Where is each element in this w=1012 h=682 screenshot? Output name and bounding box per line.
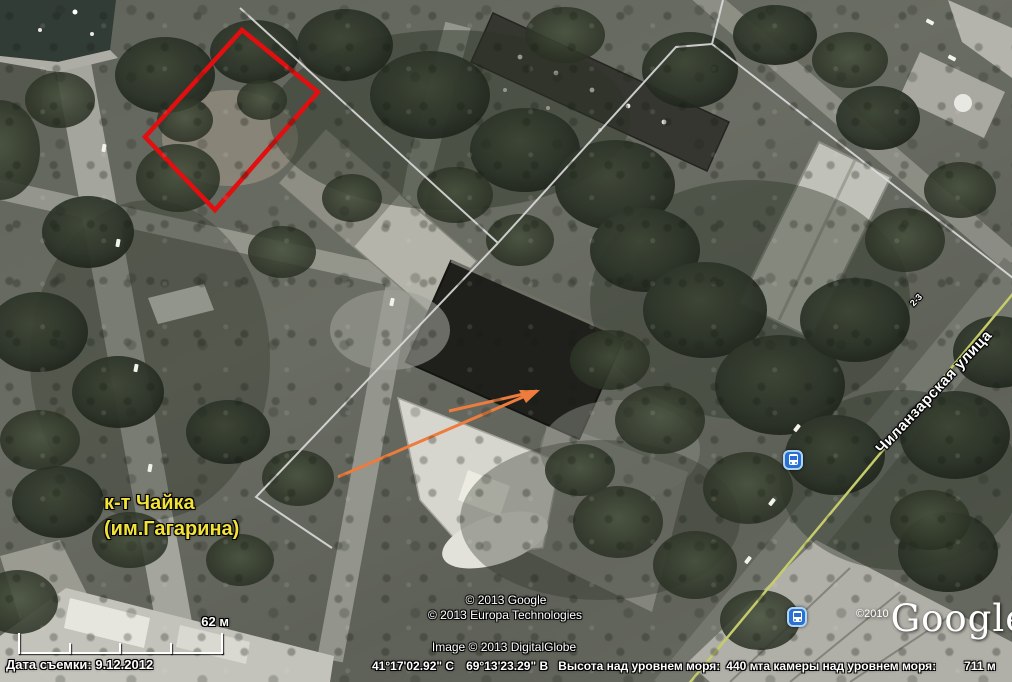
pond	[0, 0, 118, 72]
status-elevation-label: Высота над уровнем моря:	[558, 659, 720, 673]
google-logo-text: Google	[891, 597, 1012, 640]
copyright-digitalglobe: Image © 2013 DigitalGlobe	[432, 640, 576, 654]
copyright-google: © 2013 Google	[466, 593, 547, 607]
scale-bar-tick	[119, 643, 121, 654]
satellite-imagery-layer	[0, 0, 1012, 682]
scale-bar-tick	[221, 633, 223, 654]
satellite-map-viewport[interactable]: к-т Чайка (им.Гагарина) Чиланзарская ули…	[0, 0, 1012, 682]
status-camera-altitude-value: 711 м	[964, 659, 996, 673]
scale-bar-tick	[170, 643, 172, 654]
scale-bar-tick	[18, 633, 20, 654]
bus-glyph	[793, 611, 802, 622]
status-elevation-value: 440 м	[726, 659, 758, 673]
scale-bar-tick	[69, 643, 71, 654]
bus-stop-icon[interactable]	[787, 607, 807, 627]
status-longitude: 69°13'23.29" В	[466, 659, 548, 673]
copyright-europa: © 2013 Europa Technologies	[428, 608, 582, 622]
status-latitude: 41°17'02.92" С	[372, 659, 454, 673]
placemark-label-line2: (им.Гагарина)	[104, 516, 239, 542]
placemark-label-line1: к-т Чайка	[104, 490, 239, 516]
scale-bar: 62 м	[18, 612, 223, 654]
status-camera-altitude-label: та камеры над уровнем моря:	[758, 659, 937, 673]
bus-glyph	[789, 454, 798, 465]
google-watermark: ©2010Google™	[856, 597, 1012, 640]
watermark-year: ©2010	[856, 608, 889, 620]
bus-stop-icon[interactable]	[783, 450, 803, 470]
status-imagery-date: Дата съемки: 9.12.2012	[6, 657, 153, 672]
status-bar: 41°17'02.92" С 69°13'23.29" В Высота над…	[372, 659, 996, 673]
placemark-label[interactable]: к-т Чайка (им.Гагарина)	[104, 490, 239, 542]
scale-bar-label: 62 м	[201, 614, 229, 629]
